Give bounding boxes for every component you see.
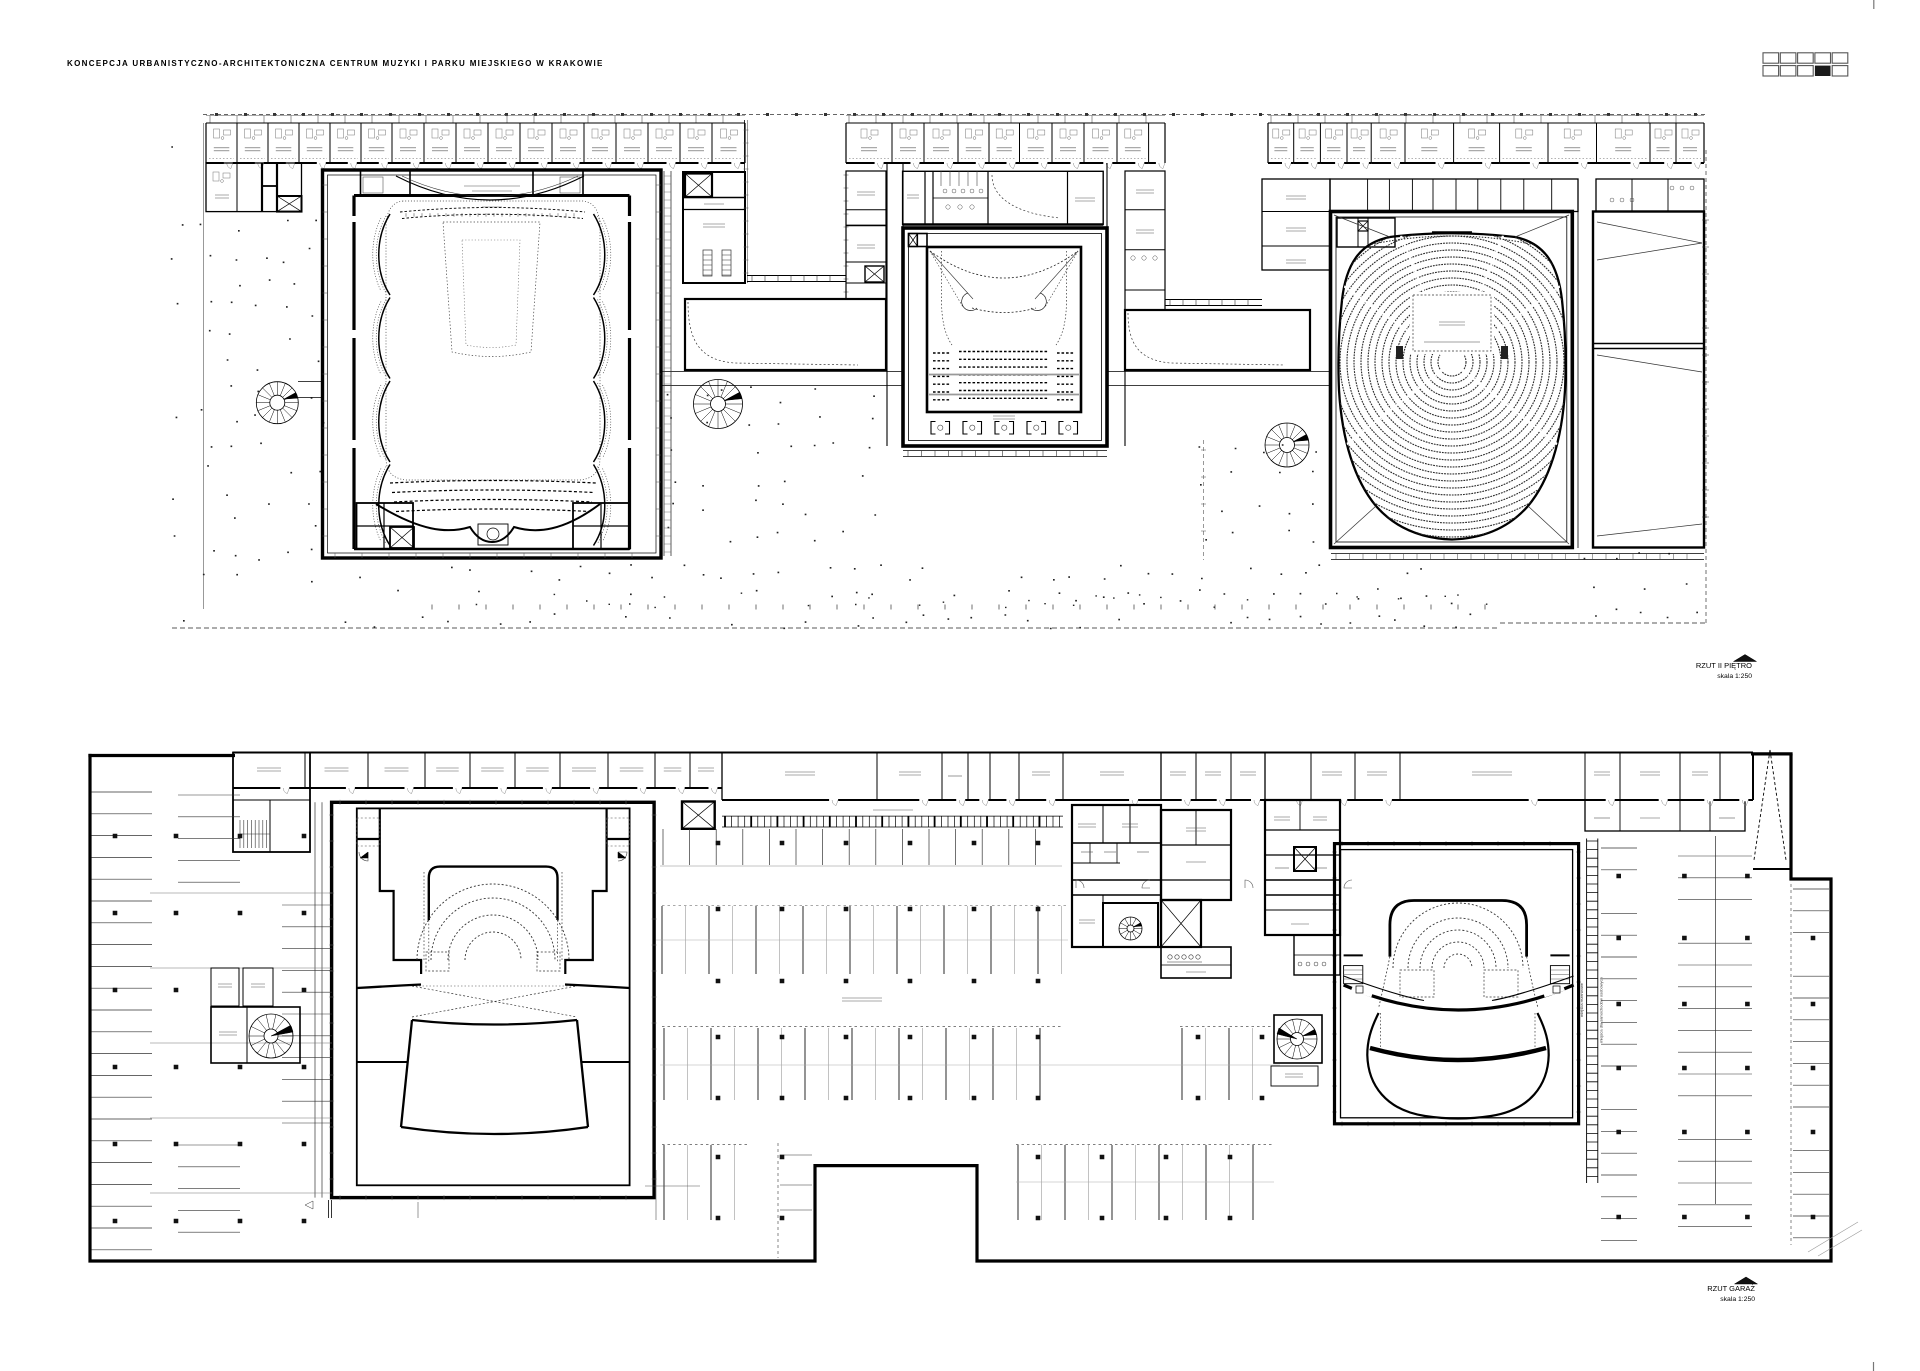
svg-text:skala 1:250: skala 1:250 [1717, 673, 1752, 680]
svg-text:KONCEPCJA URBANISTYCZNO-ARCHIT: KONCEPCJA URBANISTYCZNO-ARCHITEKTONICZNA… [67, 59, 604, 68]
svg-text:RZUT II PIĘTRO: RZUT II PIĘTRO [1696, 661, 1752, 670]
svg-text:miejsca dla samochodów osobowy: miejsca dla samochodów osobowych [1599, 977, 1604, 1043]
svg-text:miejsca rezerwowe: miejsca rezerwowe [1579, 982, 1584, 1017]
svg-text:RZUT GARAŻ: RZUT GARAŻ [1707, 1284, 1755, 1293]
svg-text:skala 1:250: skala 1:250 [1720, 1296, 1755, 1303]
